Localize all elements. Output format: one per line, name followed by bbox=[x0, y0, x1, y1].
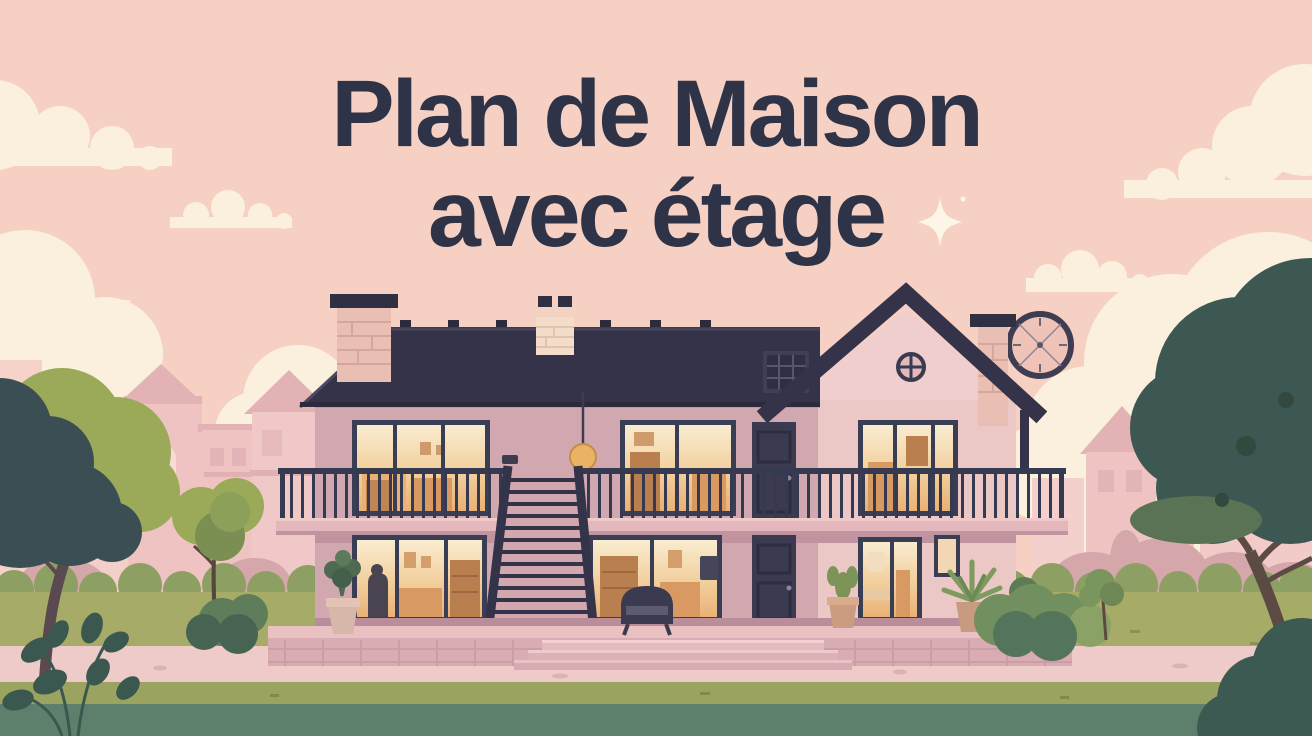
potted-cactus bbox=[827, 566, 859, 628]
ground-window-bath bbox=[858, 537, 922, 622]
balcony-railing bbox=[278, 468, 1066, 518]
gutter-pipe bbox=[1020, 410, 1029, 472]
page-title: Plan de Maison avec étage bbox=[0, 64, 1312, 264]
title-line-1: Plan de Maison bbox=[0, 64, 1312, 164]
terrace-steps bbox=[514, 640, 852, 670]
ground-window-small bbox=[934, 535, 960, 577]
illustration-scene: Plan de Maison avec étage bbox=[0, 0, 1312, 736]
foreground-grass bbox=[0, 704, 1312, 736]
wall-clock bbox=[1009, 314, 1071, 376]
wall-vent bbox=[502, 455, 518, 464]
porthole-window bbox=[898, 354, 924, 380]
ground-window-left bbox=[352, 535, 487, 622]
chimney-left bbox=[330, 294, 398, 382]
staircase bbox=[488, 466, 594, 634]
terrace bbox=[268, 618, 1072, 670]
title-line-2: avec étage bbox=[0, 164, 1312, 264]
main-house bbox=[268, 293, 1072, 670]
